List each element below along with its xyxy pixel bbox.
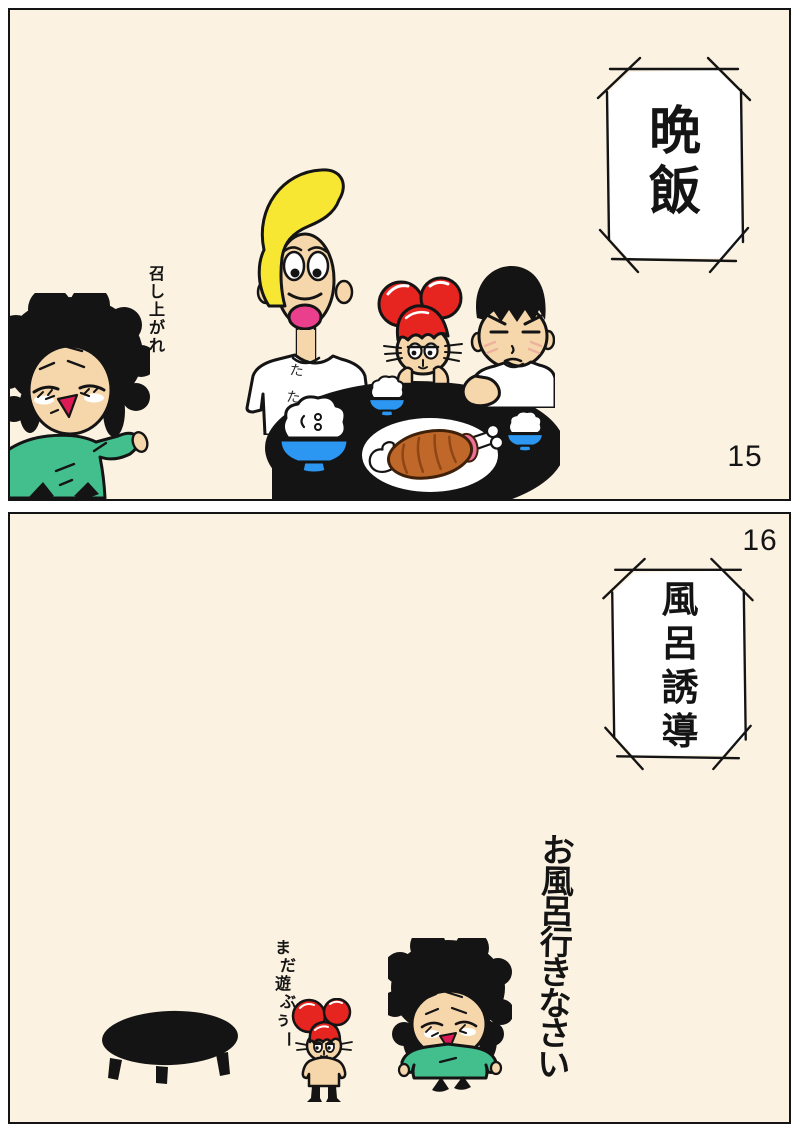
mother-face <box>29 346 111 434</box>
boy-arm-on-table <box>463 376 499 406</box>
meat-plate <box>358 410 502 500</box>
mouse-hat-kid-standing <box>290 998 360 1103</box>
panel-bath: 16 風呂誘導 お風呂行きなさい まだ遊ぶぅー <box>8 512 791 1124</box>
panel2-title: 風呂誘導 <box>659 578 701 754</box>
panel-dinner: 晩飯 召し上がれ たた <box>8 8 791 501</box>
mouse-ear-right <box>324 999 350 1025</box>
mother-character <box>8 293 150 501</box>
bowl-foot <box>302 462 326 473</box>
mom-speech-line: お風呂行きなさい <box>531 836 580 1081</box>
mouse-kid-arm-right <box>434 367 448 384</box>
comic-page: { "page": { "type": "comic-strip", "pane… <box>0 0 800 1132</box>
mouse-kid-legs <box>307 1086 341 1102</box>
rice-bowl-small-2 <box>504 409 546 455</box>
panel1-title: 晩飯 <box>647 102 703 222</box>
page-number-15: 15 <box>710 440 780 474</box>
mother-character <box>388 938 512 1110</box>
mouse-hat-cap <box>310 1022 340 1043</box>
rice-bowl-large <box>274 394 354 478</box>
mother-green-shirt <box>402 1044 498 1078</box>
page-number-16: 16 <box>730 524 790 558</box>
black-hair-kid <box>455 258 555 408</box>
low-table <box>98 1008 248 1100</box>
bowl <box>280 440 348 462</box>
mouse-kid-body <box>303 1058 345 1087</box>
mother-hand-left <box>399 1064 409 1076</box>
father-open-mouth <box>289 305 321 329</box>
mother-hand-right <box>491 1062 501 1074</box>
father-neck <box>297 330 315 360</box>
mouse-hat-kid <box>368 268 468 386</box>
